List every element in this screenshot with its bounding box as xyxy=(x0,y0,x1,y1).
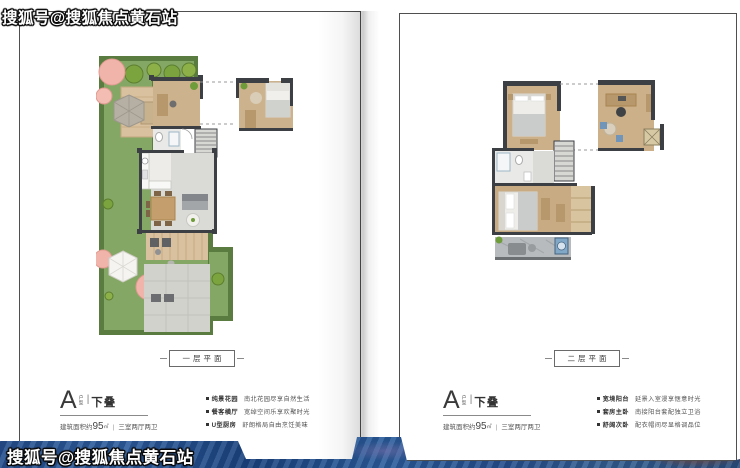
kitchen xyxy=(141,153,171,189)
feature-item: 舒阔次卧 配衣帽间尽显格调品位 xyxy=(597,418,740,431)
tab-tick-right xyxy=(622,358,629,359)
title-underline xyxy=(443,415,531,416)
feature-item: 餐客横厅 宽绰空间乐享欢聚时光 xyxy=(206,405,356,418)
detached-room xyxy=(200,78,293,131)
feature-item: U型厨房 舒朗格局自由烹饪美味 xyxy=(206,418,356,431)
feature-item: 宽境阳台 延景入室漫享惬意时光 xyxy=(597,392,740,405)
unit-letter: A xyxy=(443,390,460,411)
hallway xyxy=(533,151,554,183)
unit-grade: 下叠 xyxy=(91,394,116,410)
area-unit: ㎡ xyxy=(104,424,109,430)
bullet-icon xyxy=(597,410,600,413)
area-line: 建筑面积约95㎡|三室两厅两卫 xyxy=(60,421,157,432)
unit-title-block-right: A 户型 | 下叠 建筑面积约95㎡|三室两厅两卫 xyxy=(443,390,540,432)
wardrobe xyxy=(571,186,591,234)
area-prefix: 建筑面积约 xyxy=(443,424,476,431)
unit-letter: A xyxy=(60,390,77,411)
bathroom-2 xyxy=(495,151,533,183)
area-value: 95 xyxy=(476,421,487,432)
title-divider: | xyxy=(87,394,90,405)
washer-icon xyxy=(555,238,568,254)
area-divider: | xyxy=(496,424,498,431)
feature-list-left: 纯景花园 南北花园尽享自然生活 餐客横厅 宽绰空间乐享欢聚时光 U型厨房 舒朗格… xyxy=(206,392,356,431)
first-floor-label-tab: 一层平面 xyxy=(169,350,235,367)
area-value: 95 xyxy=(93,421,104,432)
balcony xyxy=(495,237,571,261)
second-floor-label: 二层平面 xyxy=(568,353,610,364)
first-floor-label: 一层平面 xyxy=(183,353,225,364)
room-config: 三室两厅两卫 xyxy=(118,424,157,431)
bullet-icon xyxy=(206,397,209,400)
area-line: 建筑面积约95㎡|三室两厅两卫 xyxy=(443,421,540,432)
bedroom-2 xyxy=(503,81,561,151)
patio-deck xyxy=(146,233,208,260)
parasol-icon xyxy=(109,251,137,282)
bullet-icon xyxy=(597,423,600,426)
bullet-icon xyxy=(206,410,209,413)
title-divider: | xyxy=(470,394,473,405)
feature-list-right: 宽境阳台 延景入室漫享惬意时光 套房主卧 南接阳台套配独立卫浴 舒阔次卧 配衣帽… xyxy=(597,392,740,431)
area-prefix: 建筑面积约 xyxy=(60,424,93,431)
bullet-icon xyxy=(206,423,209,426)
second-floor-plan-image xyxy=(486,74,666,266)
feature-item: 套房主卧 南接阳台套配独立卫浴 xyxy=(597,405,740,418)
unit-type-small: 户型 xyxy=(462,395,469,406)
watermark-bottom: 搜狐号@搜狐焦点黄石站 xyxy=(7,444,194,468)
bullet-icon xyxy=(597,397,600,400)
door-arc xyxy=(182,129,192,139)
brochure-spread: 一层平面 A 户型 | 下叠 建筑面积约95㎡|三室两厅两卫 纯景花园 南北花园… xyxy=(0,0,740,468)
tab-tick-left xyxy=(545,358,552,359)
title-underline xyxy=(60,415,148,416)
unit-type-small: 户型 xyxy=(79,395,86,406)
closet-icon xyxy=(644,129,660,145)
tab-tick-right xyxy=(237,358,244,359)
tab-tick-left xyxy=(160,358,167,359)
dashed-connector xyxy=(560,84,598,150)
area-unit: ㎡ xyxy=(487,424,492,430)
garden-paving xyxy=(144,264,210,332)
room-config: 三室两厅两卫 xyxy=(501,424,540,431)
page-second-floor: 二层平面 A 户型 | 下叠 建筑面积约95㎡|三室两厅两卫 宽境阳台 延景入室… xyxy=(399,13,737,461)
watermark-top: 搜狐号@搜狐焦点黄石站 xyxy=(2,6,178,28)
stairs xyxy=(554,141,574,181)
study-room-2 xyxy=(560,80,664,151)
first-floor-plan-image xyxy=(96,54,340,346)
dashed-connector xyxy=(200,82,236,124)
page-first-floor: 一层平面 A 户型 | 下叠 建筑面积约95㎡|三室两厅两卫 纯景花园 南北花园… xyxy=(19,11,361,461)
feature-item: 纯景花园 南北花园尽享自然生活 xyxy=(206,392,356,405)
second-floor-label-tab: 二层平面 xyxy=(554,350,620,367)
unit-title-block-left: A 户型 | 下叠 建筑面积约95㎡|三室两厅两卫 xyxy=(60,390,157,432)
area-divider: | xyxy=(113,424,115,431)
unit-grade: 下叠 xyxy=(474,394,499,410)
